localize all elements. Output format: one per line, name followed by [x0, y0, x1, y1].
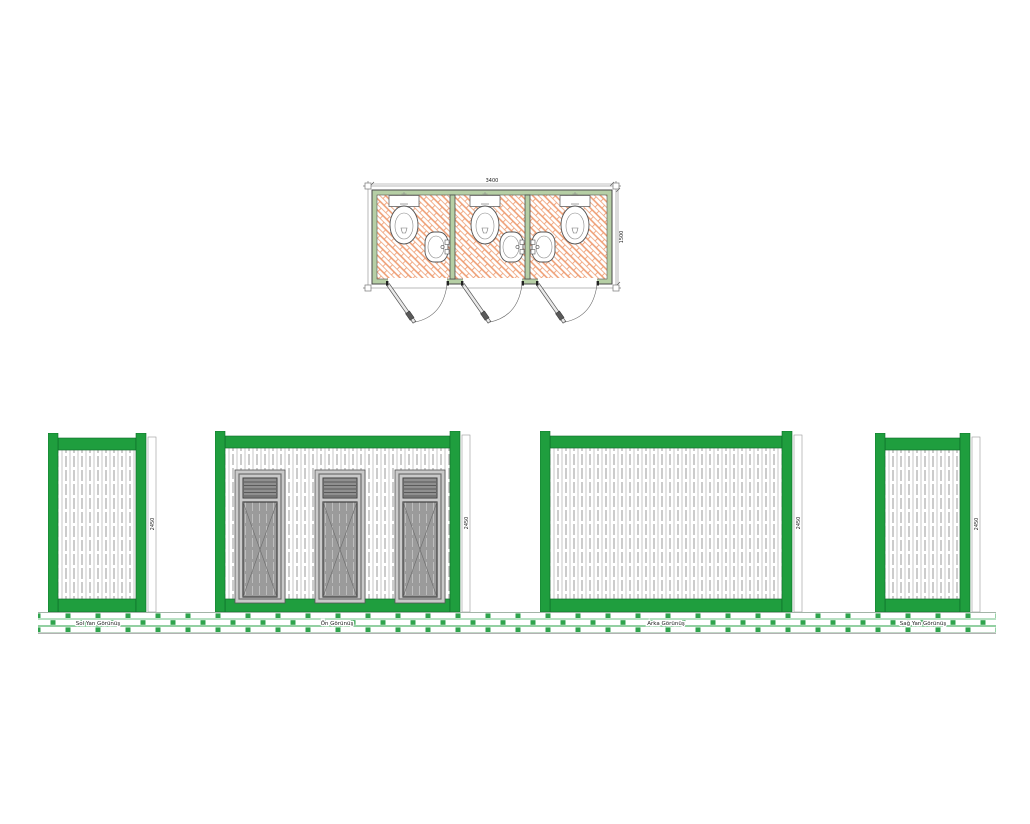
plan-width-dimension: 3400 — [486, 178, 499, 184]
plan-width-dimension-line: 3400 — [370, 178, 614, 186]
back-elevation-height-dimension: 2450 — [796, 517, 802, 530]
front-elevation-top-band — [225, 436, 450, 448]
plan-depth-dimension-line: 1500 — [616, 188, 625, 286]
sink-icon-stall-1 — [425, 232, 449, 262]
ground-strip: Sol Yan Görünüş Ön Görünüş Arka Görünüş … — [38, 612, 996, 634]
elevation-front: 2450 — [215, 431, 471, 612]
back-elevation-corner-post-right — [782, 431, 792, 612]
right-elevation-top-band — [885, 438, 960, 450]
right-elevation-corner-post-right — [960, 433, 970, 612]
back-elevation-label: Arka Görünüş — [647, 621, 685, 627]
right-elevation-bottom-band — [885, 599, 960, 612]
sink-icon-stall-2 — [500, 232, 524, 262]
left-elevation-label: Sol Yan Görünüş — [76, 621, 121, 627]
front-door-3 — [395, 470, 445, 603]
back-elevation-top-band — [550, 436, 782, 448]
back-elevation-wall — [550, 448, 782, 599]
front-elevation-corner-post-right — [450, 431, 460, 612]
toilet-icon-stall-3 — [560, 192, 590, 244]
right-elevation-label: Sağ Yan Görünüş — [900, 620, 947, 627]
elevation-back: 2450 — [540, 431, 806, 612]
door-swing-2 — [461, 281, 524, 324]
elevation-right-side: 2450 — [875, 433, 985, 612]
elevation-left-side: 2450 — [48, 433, 164, 612]
plan-partition-wall-1 — [450, 195, 455, 279]
left-elevation-wall — [58, 450, 136, 599]
front-elevation-corner-post-left — [215, 431, 225, 612]
front-door-2 — [315, 470, 365, 603]
front-door-1 — [235, 470, 285, 603]
right-elevation-corner-post-left — [875, 433, 885, 612]
left-elevation-top-band — [58, 438, 136, 450]
plan-door-opening-1 — [388, 278, 447, 286]
door-swing-1 — [386, 281, 449, 324]
floor-plan: 3400 1500 — [360, 170, 630, 340]
back-elevation-bottom-band — [550, 599, 782, 612]
front-elevation-label: Ön Görünüş — [321, 620, 354, 627]
ground-brick-pattern — [38, 612, 996, 633]
left-elevation-corner-post-left — [48, 433, 58, 612]
door-swing-3 — [536, 281, 599, 324]
toilet-icon-stall-1 — [389, 192, 419, 244]
left-elevation-bottom-band — [58, 599, 136, 612]
front-elevation-height-dimension: 2450 — [464, 517, 470, 530]
left-elevation-height-dimension: 2450 — [150, 518, 156, 531]
sink-icon-stall-3 — [531, 232, 555, 262]
toilet-icon-stall-2 — [470, 192, 500, 244]
back-elevation-corner-post-left — [540, 431, 550, 612]
right-elevation-height-dimension: 2450 — [974, 518, 980, 531]
plan-door-opening-2 — [463, 278, 522, 286]
drawing-canvas: 3400 1500 — [0, 0, 1030, 824]
plan-door-opening-3 — [538, 278, 597, 286]
left-elevation-corner-post-right — [136, 433, 146, 612]
plan-depth-dimension: 1500 — [619, 231, 625, 244]
right-elevation-wall — [885, 450, 960, 599]
plan-partition-wall-2 — [525, 195, 530, 279]
